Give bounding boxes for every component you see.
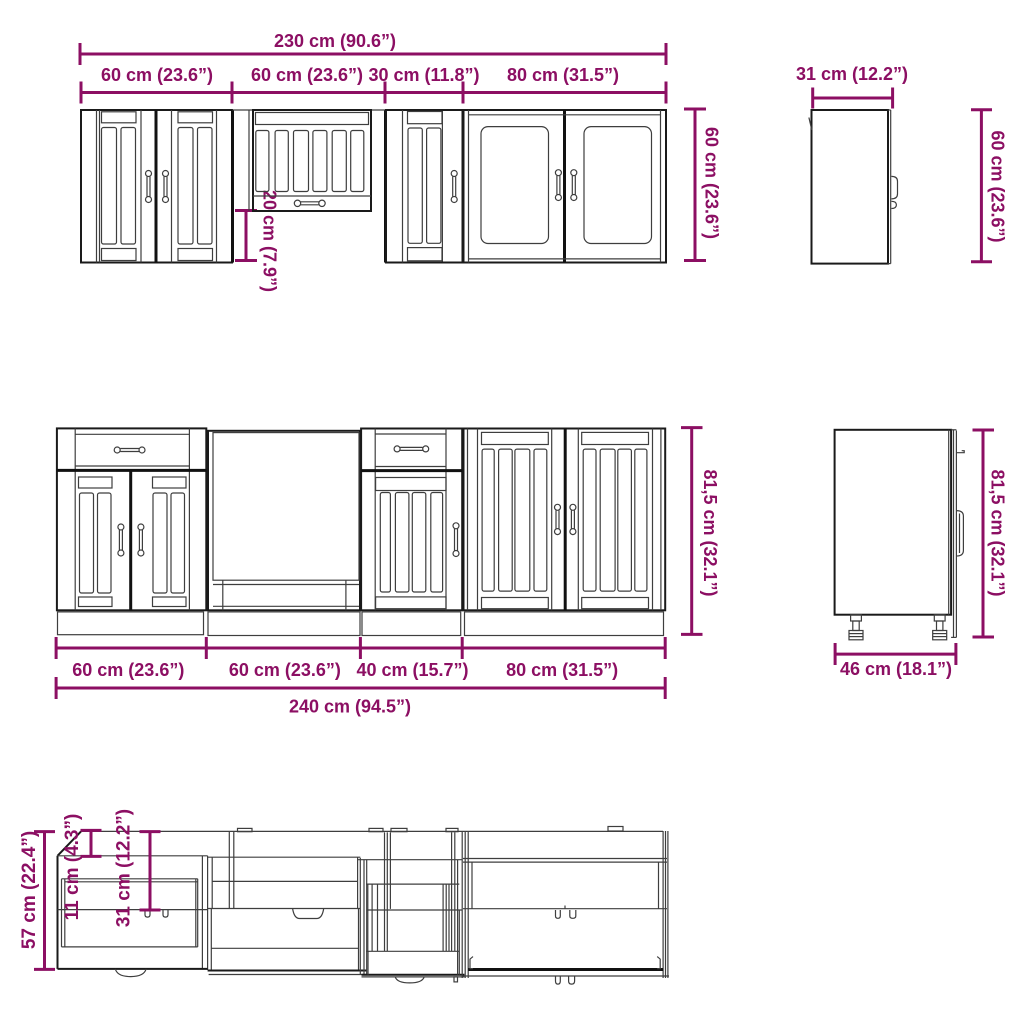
svg-text:31 cm (12.2”): 31 cm (12.2”) <box>114 809 135 927</box>
svg-text:57 cm (22.4”): 57 cm (22.4”) <box>19 831 40 949</box>
svg-text:60 cm (23.6”): 60 cm (23.6”) <box>251 65 363 85</box>
svg-text:40 cm (15.7”): 40 cm (15.7”) <box>356 660 468 680</box>
svg-text:81,5 cm (32.1”): 81,5 cm (32.1”) <box>988 469 1008 596</box>
svg-text:60 cm (23.6”): 60 cm (23.6”) <box>702 127 722 239</box>
svg-text:230 cm (90.6”): 230 cm (90.6”) <box>274 31 396 51</box>
svg-text:81,5 cm (32.1”): 81,5 cm (32.1”) <box>700 469 720 596</box>
svg-text:60 cm (23.6”): 60 cm (23.6”) <box>72 660 184 680</box>
svg-text:30 cm (11.8”): 30 cm (11.8”) <box>368 65 479 85</box>
svg-text:11 cm (4.3”): 11 cm (4.3”) <box>62 814 83 921</box>
svg-text:20 cm (7.9”): 20 cm (7.9”) <box>260 190 280 292</box>
svg-text:60 cm (23.6”): 60 cm (23.6”) <box>229 660 341 680</box>
svg-text:60 cm (23.6”): 60 cm (23.6”) <box>988 130 1008 242</box>
svg-text:46 cm (18.1”): 46 cm (18.1”) <box>840 659 952 679</box>
svg-text:60 cm (23.6”): 60 cm (23.6”) <box>101 65 213 85</box>
svg-text:31 cm (12.2”): 31 cm (12.2”) <box>796 64 908 84</box>
svg-text:80 cm (31.5”): 80 cm (31.5”) <box>506 660 618 680</box>
svg-text:80 cm (31.5”): 80 cm (31.5”) <box>507 65 619 85</box>
svg-text:240 cm (94.5”): 240 cm (94.5”) <box>289 697 411 717</box>
